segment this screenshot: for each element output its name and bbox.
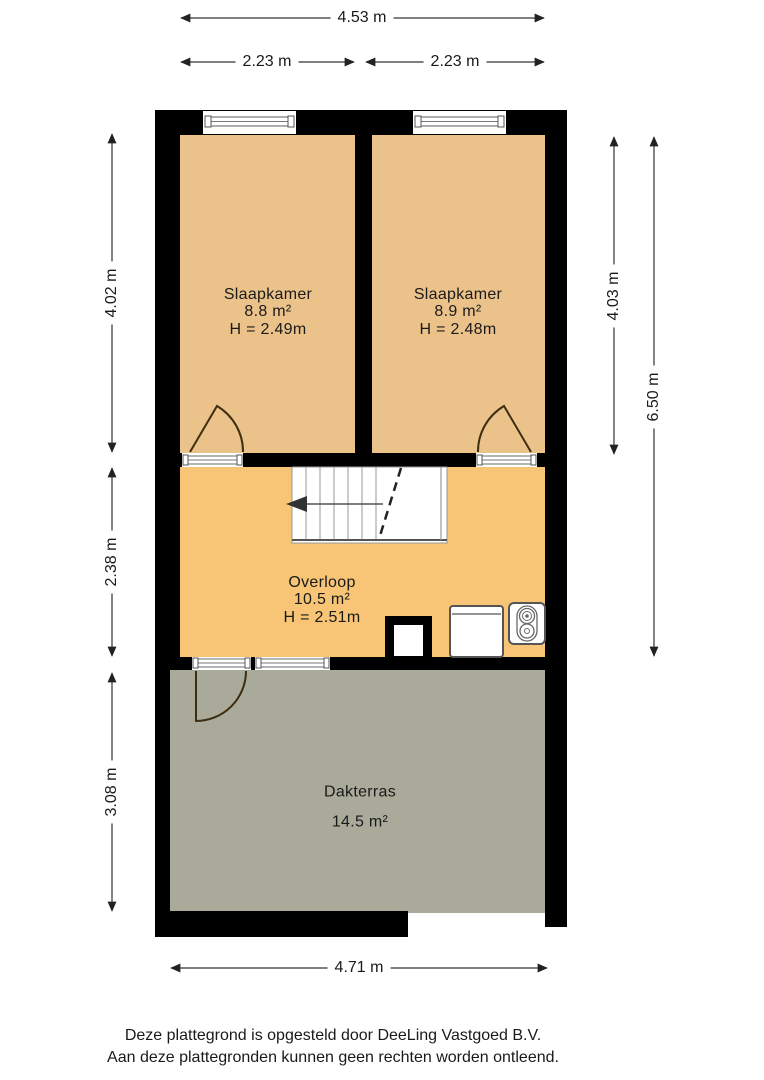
dimension-label-left-middle: 2.38 m (102, 531, 122, 594)
room-label-slaapkamer-2: Slaapkamer 8.9 m² H = 2.48m (414, 286, 502, 338)
room-area: 10.5 m² (284, 591, 361, 608)
room-area: 8.9 m² (414, 303, 502, 320)
room-name: Overloop (284, 574, 361, 591)
room-height: H = 2.49m (224, 321, 312, 338)
window-symbol-terrace (255, 657, 330, 670)
room-name: Slaapkamer (414, 286, 502, 303)
staircase (286, 467, 447, 543)
footer-disclaimer-line2: Aan deze plattegronden kunnen geen recht… (0, 1049, 666, 1067)
dimension-label-right-outer: 6.50 m (644, 366, 664, 429)
room-label-dakterras: Dakterras 14.5 m² (324, 777, 396, 836)
window-symbol-top-left (203, 111, 296, 134)
dimension-label-top-right: 2.23 m (424, 52, 487, 72)
room-name: Slaapkamer (224, 286, 312, 303)
dimension-label-left-upper: 4.02 m (102, 262, 122, 325)
dimension-label-left-lower: 3.08 m (102, 761, 122, 824)
dimension-label-right-inner: 4.03 m (604, 265, 624, 328)
washing-machine-icon (450, 606, 503, 657)
wall-left-lower (155, 657, 170, 937)
shaft-duct (385, 616, 432, 664)
room-area: 8.8 m² (224, 303, 312, 320)
room-label-overloop: Overloop 10.5 m² H = 2.51m (284, 574, 361, 626)
footer-disclaimer-line1: Deze plattegrond is opgesteld door DeeLi… (0, 1027, 666, 1045)
dimension-label-top-total: 4.53 m (331, 8, 394, 28)
dimension-label-top-left: 2.23 m (236, 52, 299, 72)
room-height: H = 2.51m (284, 609, 361, 626)
door-opening-bedroom-1 (182, 453, 243, 467)
room-height: H = 2.48m (414, 321, 502, 338)
wall-right (545, 110, 567, 927)
room-label-slaapkamer-1: Slaapkamer 8.8 m² H = 2.49m (224, 286, 312, 338)
room-name: Dakterras (324, 777, 396, 807)
door-opening-terrace (192, 657, 251, 670)
window-symbol-top-right (413, 111, 506, 134)
wall-bedroom-divider (355, 110, 372, 467)
floorplan-canvas: 4.53 m 2.23 m 2.23 m 4.02 m 2.38 m 3.08 … (0, 0, 764, 1080)
wall-left-upper (155, 110, 180, 670)
wall-bottom (155, 911, 408, 937)
dimension-label-bottom: 4.71 m (328, 958, 391, 978)
door-opening-bedroom-2 (476, 453, 537, 467)
room-area: 14.5 m² (324, 807, 396, 837)
ventilation-unit-icon (509, 603, 545, 644)
